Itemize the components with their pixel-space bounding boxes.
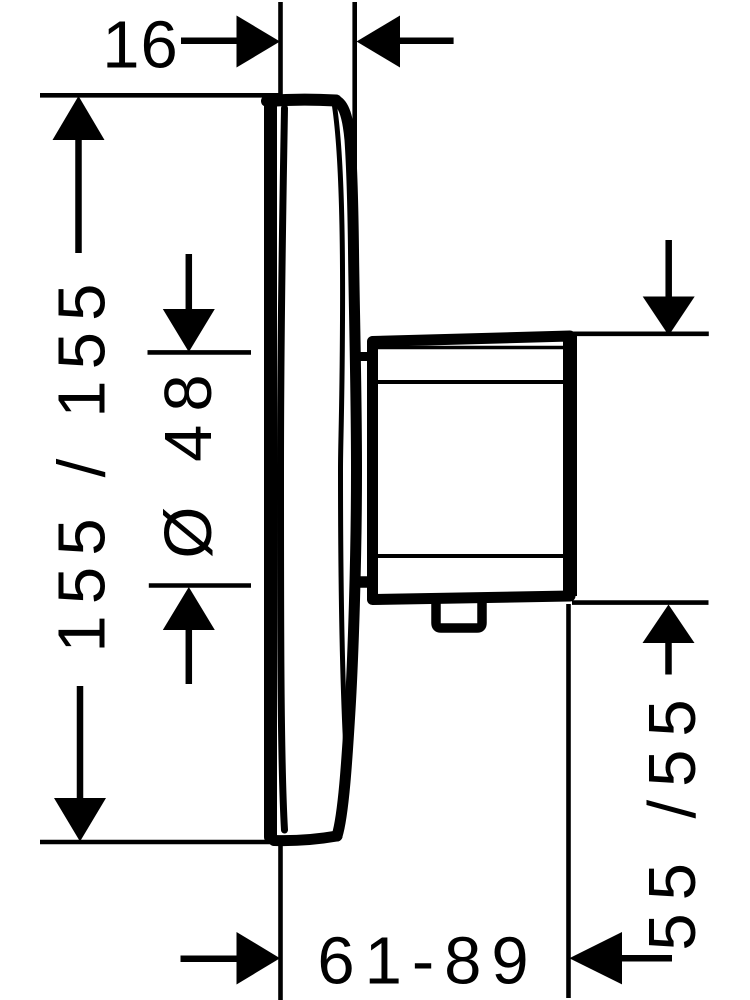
svg-text:Ø 48: Ø 48 <box>151 361 226 558</box>
svg-text:16: 16 <box>102 8 179 83</box>
svg-text:155 / 155: 155 / 155 <box>45 272 120 652</box>
svg-text:61-89: 61-89 <box>317 924 538 999</box>
svg-text:55 /55: 55 /55 <box>635 686 710 950</box>
